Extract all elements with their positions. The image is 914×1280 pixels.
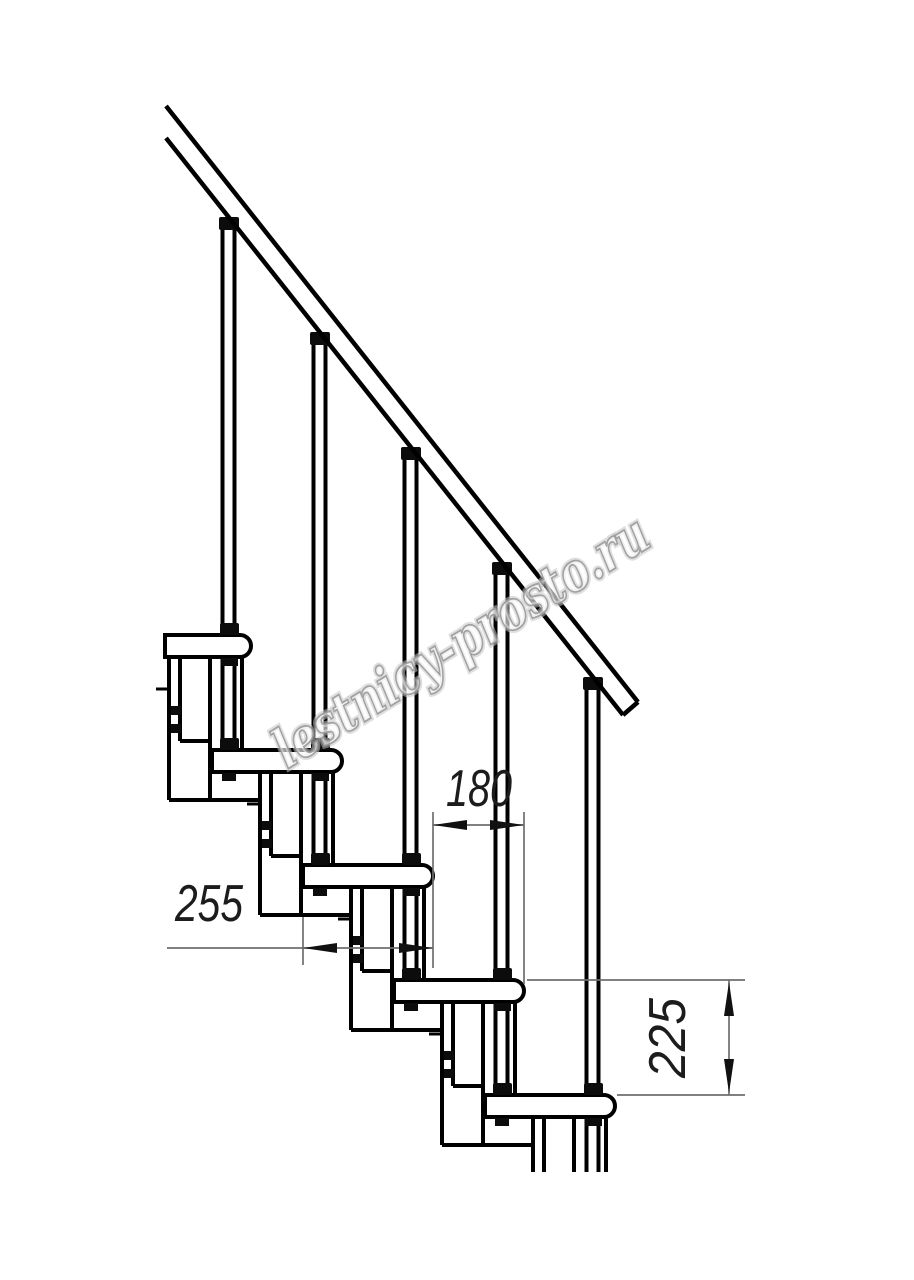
post-flange: [493, 1083, 512, 1095]
watermark: lestnicy-prosto.ru lestnicy-prosto.ru: [260, 501, 660, 780]
tread: [485, 1095, 615, 1117]
tread-connector: [403, 888, 420, 896]
module-bolt: [353, 936, 363, 945]
arrowhead-down-icon: [724, 1059, 734, 1093]
module-bolt: [444, 1051, 454, 1060]
tread-connector: [494, 1003, 511, 1011]
technical-drawing-page: 180 255 225 lestnicy-prosto.ru lestnicy-…: [0, 0, 914, 1280]
module-bolt: [171, 706, 181, 715]
module-bolt: [262, 821, 272, 830]
bolt-stub: [313, 888, 327, 896]
baluster: [314, 345, 326, 865]
tread-connector: [585, 1118, 602, 1126]
dimension-tread-depth-label: 255: [174, 875, 244, 933]
base-flange: [493, 968, 512, 980]
dimension-rise: 225: [527, 980, 745, 1095]
bolt-stub: [222, 773, 236, 781]
bolt-stub: [495, 1118, 509, 1126]
arrowhead-left-icon: [303, 943, 337, 953]
tread: [394, 980, 524, 1002]
arrowhead-up-icon: [724, 982, 734, 1016]
dimension-rise-label: 225: [639, 997, 697, 1079]
watermark-text: lestnicy-prosto.ru: [260, 501, 660, 780]
baluster: [223, 230, 235, 750]
arrowhead-left-icon: [433, 820, 467, 830]
bolt-stub: [404, 1003, 418, 1011]
support-module: [533, 1118, 574, 1260]
module-bolt: [171, 724, 181, 733]
dimension-going: 180: [433, 760, 524, 984]
base-flange: [584, 1083, 603, 1095]
staircase-drawing: 180 255 225 lestnicy-prosto.ru lestnicy-…: [0, 0, 914, 1280]
base-flange: [220, 623, 239, 635]
post-flange: [311, 853, 330, 865]
post-flange: [402, 968, 421, 980]
tread: [165, 635, 251, 657]
handrail-end-cap: [623, 702, 638, 715]
tread: [303, 865, 433, 887]
baluster: [405, 460, 417, 980]
post-flange: [220, 738, 239, 750]
base-flange: [402, 853, 421, 865]
module-bolt: [444, 1069, 454, 1078]
module-bolt: [353, 954, 363, 963]
tread-connector: [221, 658, 238, 666]
tread-connector: [312, 773, 329, 781]
module-bolt: [262, 839, 272, 848]
dimension-going-label: 180: [446, 760, 512, 818]
baluster: [587, 690, 599, 1210]
